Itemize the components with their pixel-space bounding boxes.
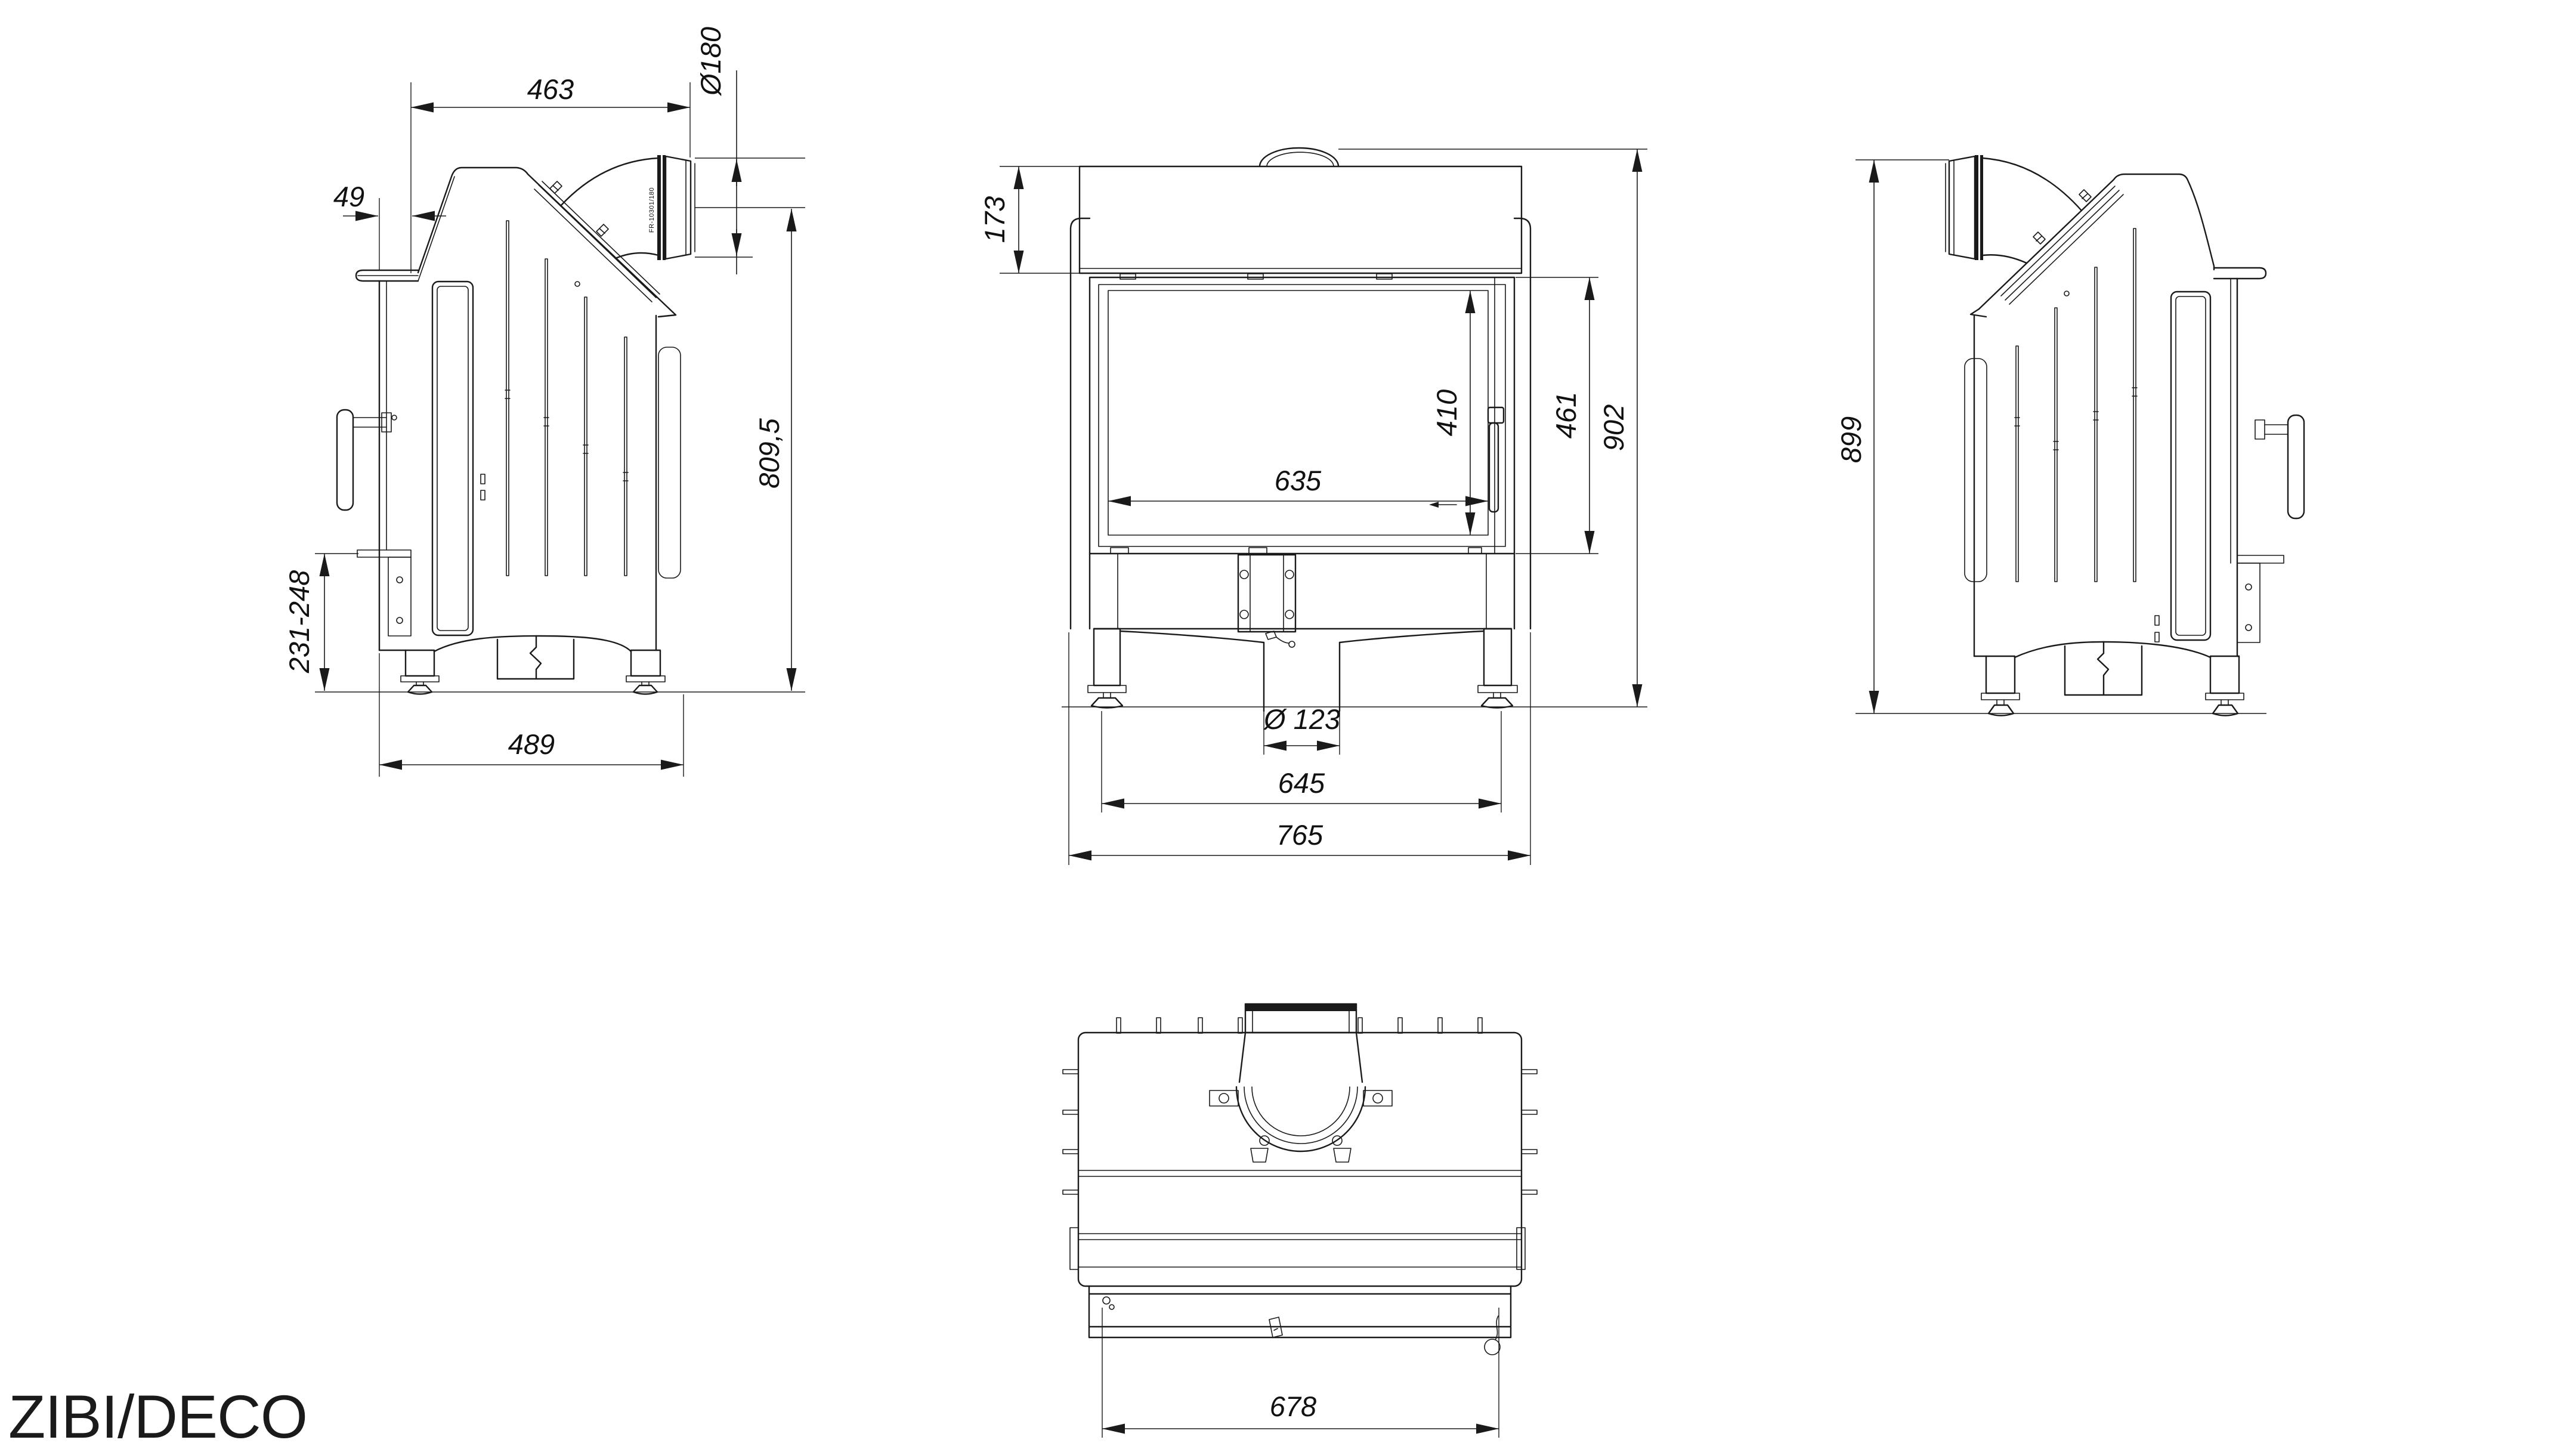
top-view: 678 (1063, 1004, 1537, 1438)
top-view-fins (1063, 1018, 1537, 1194)
door-handle-left-view (337, 410, 353, 510)
dim-glass-width: 635 (1275, 465, 1322, 496)
door-handle-right-view (2288, 415, 2304, 518)
top-view-geometry (1063, 1004, 1537, 1355)
dim-flue-diameter: Ø180 (695, 27, 726, 97)
drawing-title: ZIBI/DECO (8, 1383, 307, 1449)
dim-top-width: 463 (527, 73, 574, 105)
right-view-geometry (1946, 155, 2304, 716)
left-view-geometry (337, 155, 695, 694)
dim-height-to-flue-axis: 809,5 (753, 418, 785, 488)
dim-air-inlet-diameter: Ø 123 (1263, 703, 1340, 735)
dim-front-offset: 49 (333, 181, 364, 212)
door-handle-front-view (1488, 407, 1504, 512)
right-view-dimensions: 899 (1835, 160, 2266, 713)
dim-total-width: 765 (1276, 819, 1323, 851)
dim-glass-height: 410 (1431, 390, 1462, 436)
dim-right-total-height: 899 (1835, 416, 1867, 463)
left-view-fins (505, 221, 628, 576)
left-view-dimensions: 463 Ø180 49 809,5 231-248 489 FR-10301/1… (283, 27, 805, 777)
dim-top-depth: 678 (1270, 1391, 1316, 1422)
technical-drawing-sheet: 463 Ø180 49 809,5 231-248 489 FR-10301/1… (0, 0, 2576, 1449)
right-side-view: 899 (1835, 155, 2304, 716)
dim-hood-height: 173 (979, 196, 1010, 243)
dim-feet-spacing: 645 (1278, 767, 1325, 799)
left-side-view: 463 Ø180 49 809,5 231-248 489 FR-10301/1… (283, 27, 805, 777)
front-view: 173 635 410 461 902 Ø 123 645 765 (979, 148, 1647, 865)
dim-door-height: 461 (1550, 392, 1582, 438)
dim-base-height: 231-248 (283, 570, 315, 674)
dim-total-height: 902 (1598, 404, 1629, 451)
dim-depth: 489 (508, 728, 555, 760)
flue-marking-label: FR-10301/180 (648, 187, 655, 233)
